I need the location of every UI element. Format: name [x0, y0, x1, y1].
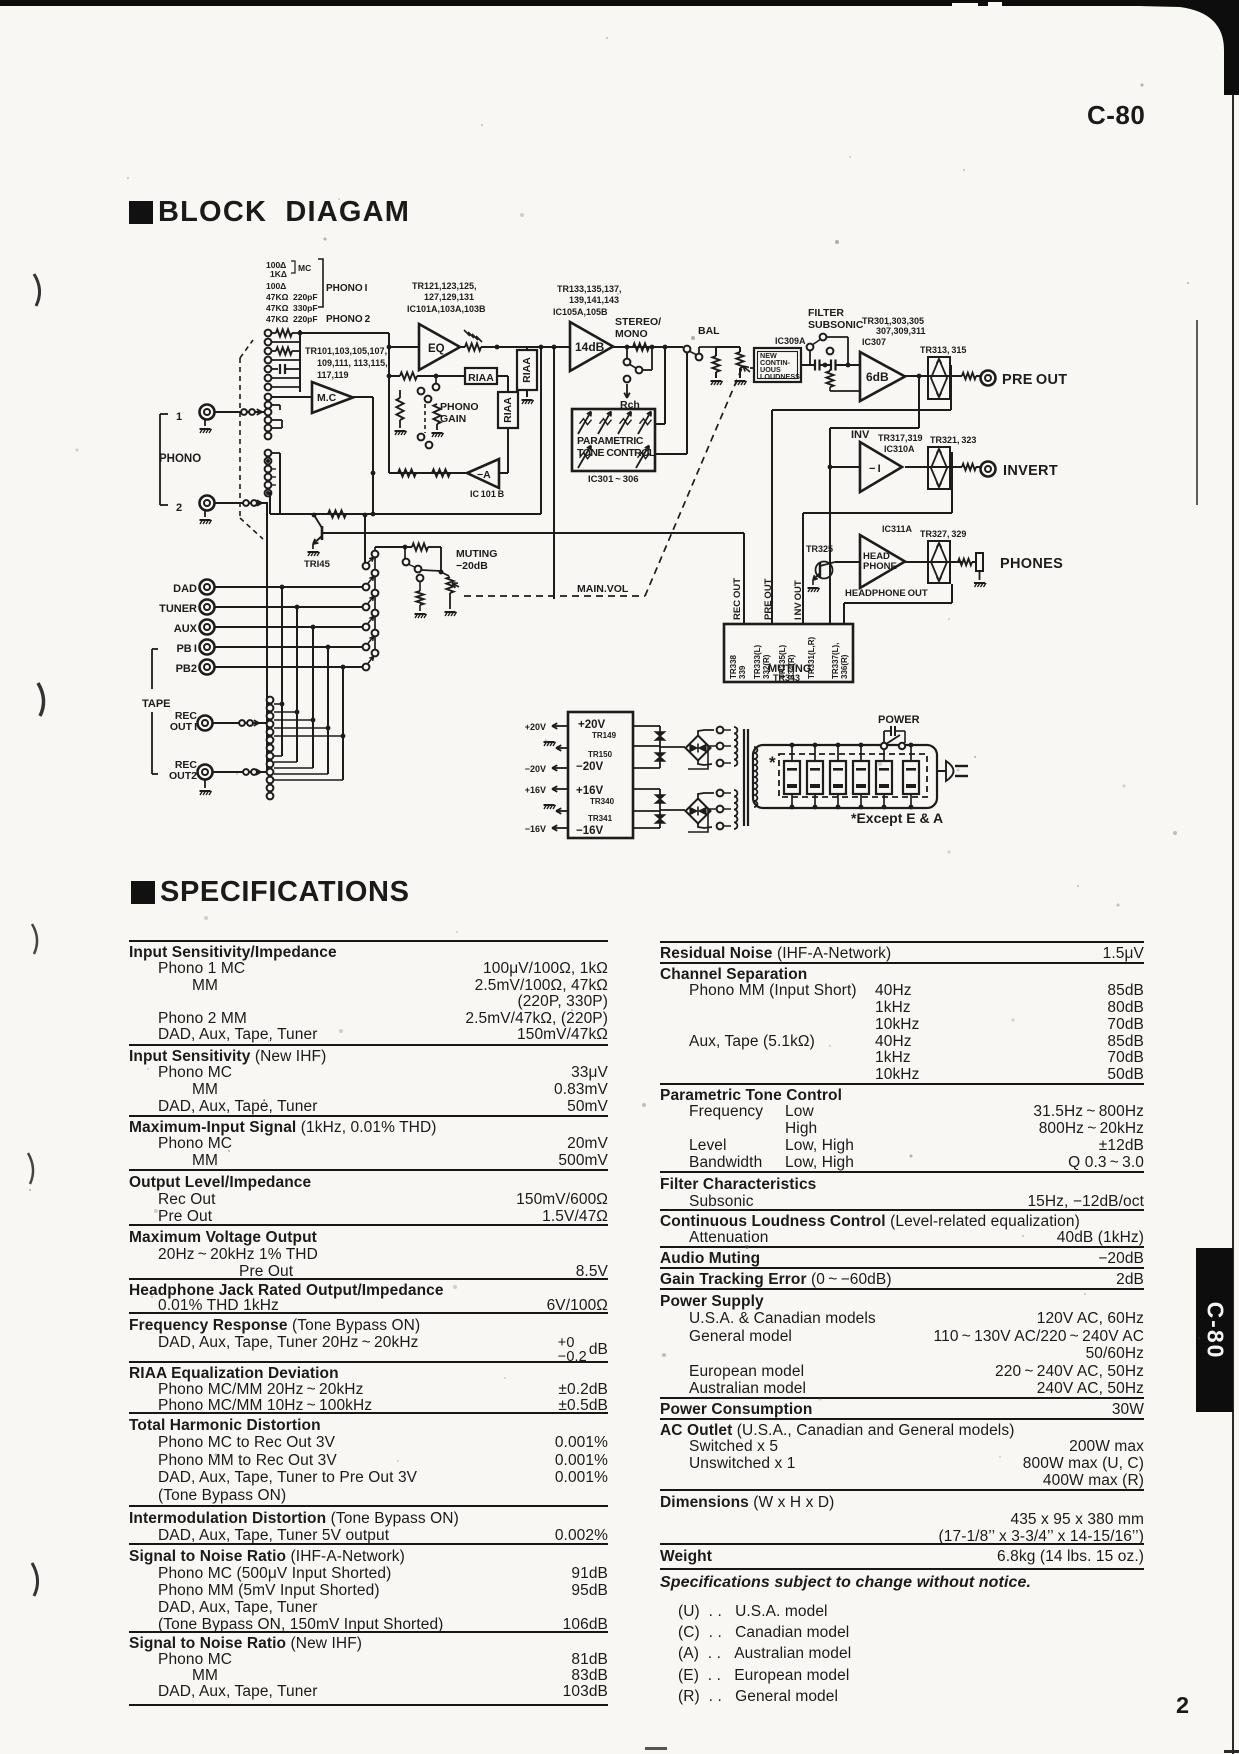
- svg-text:PHONO: PHONO: [159, 453, 201, 465]
- svg-text:TR301,303,305: TR301,303,305: [862, 316, 924, 326]
- svg-text:100Δ: 100Δ: [266, 281, 286, 291]
- svg-text:2: 2: [176, 502, 182, 514]
- svg-text:PRE OUT: PRE OUT: [763, 578, 774, 620]
- svg-text:PB2: PB2: [176, 663, 197, 675]
- svg-text:TUNER: TUNER: [159, 603, 197, 615]
- svg-text:1: 1: [176, 411, 182, 423]
- svg-text:TR343: TR343: [773, 673, 800, 683]
- svg-text:+20V: +20V: [525, 722, 546, 732]
- svg-text:RIAA: RIAA: [468, 372, 494, 384]
- svg-text:PHONO I: PHONO I: [326, 283, 368, 294]
- svg-text:IC105A,105B: IC105A,105B: [553, 307, 608, 317]
- svg-text:−20V: −20V: [525, 764, 546, 774]
- svg-text:*Except E & A: *Except E & A: [851, 810, 943, 826]
- svg-text:+16V: +16V: [525, 785, 546, 795]
- svg-text:DAD: DAD: [173, 583, 197, 595]
- svg-text:TR327, 329: TR327, 329: [920, 529, 966, 539]
- svg-text:MAIN.VOL: MAIN.VOL: [577, 583, 629, 595]
- svg-text:14dB: 14dB: [575, 340, 605, 354]
- svg-text:−16V: −16V: [525, 824, 546, 834]
- svg-text:MC: MC: [298, 263, 311, 273]
- svg-text:PHONES: PHONES: [1000, 556, 1063, 572]
- svg-text:POWER: POWER: [878, 714, 920, 726]
- svg-text:TR340: TR340: [590, 797, 615, 806]
- svg-text:M.C: M.C: [317, 392, 337, 404]
- svg-text:INVERT: INVERT: [1003, 463, 1058, 479]
- svg-text:330pF: 330pF: [293, 303, 318, 313]
- svg-text:PHONE: PHONE: [863, 561, 897, 572]
- svg-text:TR338: TR338: [729, 654, 738, 679]
- svg-text:LOUDNESS: LOUDNESS: [760, 372, 800, 381]
- svg-text:TR133,135,137,: TR133,135,137,: [557, 284, 622, 294]
- svg-text:127,129,131: 127,129,131: [424, 292, 474, 302]
- svg-text:RIAA: RIAA: [502, 397, 514, 423]
- svg-text:6dB: 6dB: [866, 370, 889, 384]
- svg-text:RIAA: RIAA: [521, 357, 533, 383]
- svg-text:MUTING: MUTING: [456, 548, 497, 560]
- svg-text:TR101,103,105,107,: TR101,103,105,107,: [305, 346, 387, 356]
- svg-text:−20V: −20V: [576, 761, 604, 773]
- svg-text:−20dB: −20dB: [456, 560, 488, 572]
- svg-text:TR121,123,125,: TR121,123,125,: [412, 281, 477, 291]
- svg-text:TR313, 315: TR313, 315: [920, 345, 966, 355]
- svg-text:TR337(L),: TR337(L),: [831, 643, 840, 679]
- svg-text:TR333(L): TR333(L): [753, 644, 762, 679]
- svg-text:PHONO 2: PHONO 2: [326, 314, 371, 325]
- svg-text:307,309,311: 307,309,311: [876, 326, 926, 336]
- svg-text:HEADPHONE OUT: HEADPHONE OUT: [845, 588, 928, 599]
- svg-text:TAPE: TAPE: [142, 698, 171, 710]
- svg-text:139,141,143: 139,141,143: [569, 295, 619, 305]
- svg-text:IC301 ~ 306: IC301 ~ 306: [588, 474, 639, 485]
- svg-text:+20V: +20V: [578, 719, 606, 731]
- svg-text:IC307: IC307: [862, 337, 886, 347]
- svg-text:I NV OUT: I NV OUT: [793, 580, 804, 620]
- svg-text:+16V: +16V: [576, 785, 604, 797]
- svg-text:GAIN: GAIN: [440, 413, 466, 425]
- svg-text:47KΩ: 47KΩ: [266, 314, 289, 324]
- svg-text:AUX: AUX: [174, 623, 198, 635]
- svg-text:TR317,319: TR317,319: [878, 433, 923, 443]
- svg-text:*: *: [769, 753, 776, 772]
- svg-text:220pF: 220pF: [293, 314, 318, 324]
- svg-text:IC310A: IC310A: [884, 444, 915, 454]
- svg-text:TRI45: TRI45: [304, 559, 331, 570]
- svg-text:TR150: TR150: [588, 750, 613, 759]
- svg-text:OUT2: OUT2: [169, 770, 197, 782]
- svg-text:1KΔ: 1KΔ: [270, 269, 287, 279]
- svg-text:REC OUT: REC OUT: [732, 578, 743, 620]
- svg-text:MONO: MONO: [615, 328, 648, 340]
- svg-text:BAL: BAL: [698, 325, 720, 337]
- svg-text:OUT I: OUT I: [170, 721, 197, 733]
- svg-text:IC309A: IC309A: [775, 336, 806, 346]
- svg-text:−16V: −16V: [576, 825, 604, 837]
- svg-text:SUBSONIC: SUBSONIC: [808, 319, 864, 331]
- svg-text:IC 101 B: IC 101 B: [470, 489, 505, 499]
- svg-text:117,119: 117,119: [317, 370, 349, 380]
- svg-text:339: 339: [738, 665, 747, 679]
- svg-text:336(R): 336(R): [840, 654, 849, 679]
- svg-text:PHONO: PHONO: [440, 401, 479, 413]
- svg-text:−A: −A: [477, 469, 491, 481]
- svg-text:TR341: TR341: [588, 814, 613, 823]
- svg-text:109,111, 113,115,: 109,111, 113,115,: [317, 358, 388, 368]
- svg-text:PRE OUT: PRE OUT: [1002, 372, 1067, 388]
- svg-text:TR325: TR325: [806, 544, 833, 554]
- svg-text:− I: − I: [869, 463, 881, 475]
- svg-text:PARAMETRIC: PARAMETRIC: [577, 435, 644, 447]
- svg-text:220pF: 220pF: [293, 292, 318, 302]
- svg-text:FILTER: FILTER: [808, 307, 844, 319]
- svg-text:IC101A,103A,103B: IC101A,103A,103B: [407, 304, 486, 314]
- svg-text:47KΩ: 47KΩ: [266, 292, 289, 302]
- svg-text:EQ: EQ: [428, 343, 445, 355]
- svg-text:STEREO/: STEREO/: [615, 316, 661, 328]
- svg-text:TR149: TR149: [592, 731, 617, 740]
- svg-text:TR321, 323: TR321, 323: [930, 435, 976, 445]
- svg-text:47KΩ: 47KΩ: [266, 303, 289, 313]
- svg-text:IC311A: IC311A: [882, 524, 913, 534]
- svg-text:INV: INV: [851, 429, 870, 441]
- svg-text:PB I: PB I: [176, 643, 197, 655]
